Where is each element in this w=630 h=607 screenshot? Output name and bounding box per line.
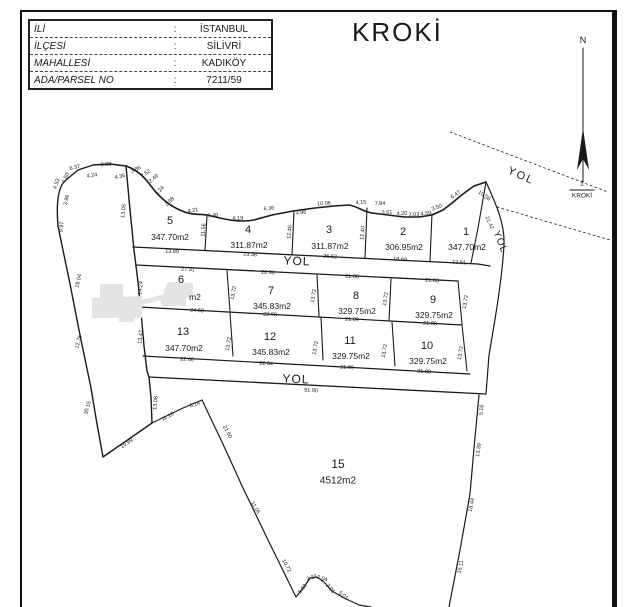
row2-divider [227, 271, 230, 311]
scale-numerator: 1 [580, 181, 584, 188]
row2-bottom-line [139, 307, 462, 325]
row3-divider [392, 322, 395, 366]
parcel15-right-boundary [449, 395, 479, 607]
row1-divider [365, 208, 367, 258]
road2-bottom-line [149, 377, 486, 394]
right-road-edge [486, 182, 504, 394]
north-label: N [580, 35, 587, 45]
row2-divider [317, 275, 319, 316]
row2-divider [389, 279, 391, 321]
kroki-document-page: İLİ : İSTANBUL İLÇESİ : SİLİVRİ MAHALLES… [0, 0, 630, 607]
row2-top-line [136, 265, 458, 281]
parcel10-right-edge [462, 325, 467, 371]
dotted-road-edge [497, 207, 610, 240]
top-boundary [126, 166, 486, 221]
parcel15-left-boundary [152, 400, 371, 607]
scale-denominator: KROKİ [572, 193, 592, 200]
parcel9-right-edge [458, 281, 462, 324]
erasure-blob [92, 282, 193, 322]
parcel1-right-edge [471, 182, 486, 263]
row3-divider [321, 317, 323, 360]
row1-divider [292, 211, 294, 255]
row3-divider [230, 313, 233, 356]
row1-divider [430, 214, 432, 261]
row3-bottom-line [143, 356, 470, 374]
row1-bottom-line [133, 247, 490, 266]
parcel-map-drawing [0, 0, 630, 607]
row1-divider [205, 216, 207, 250]
